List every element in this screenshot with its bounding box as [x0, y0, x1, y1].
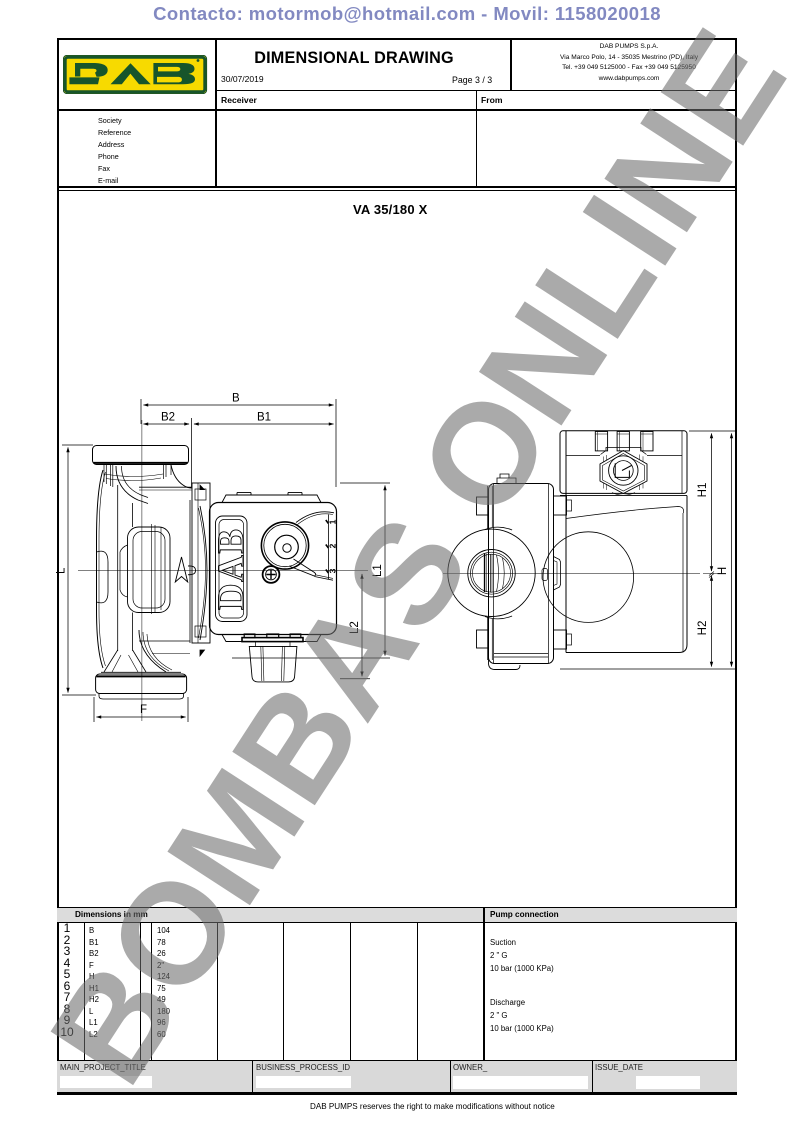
- svg-text:1: 1: [327, 519, 337, 524]
- svg-text:B: B: [232, 393, 240, 405]
- svg-text:F: F: [140, 704, 147, 716]
- svg-text:H2: H2: [697, 621, 709, 636]
- svg-text:B2: B2: [161, 412, 175, 424]
- svg-text:L: L: [56, 567, 68, 574]
- svg-text:H1: H1: [697, 483, 709, 498]
- svg-text:H: H: [717, 567, 729, 575]
- svg-text:DAB: DAB: [211, 527, 252, 610]
- svg-text:B1: B1: [257, 412, 271, 424]
